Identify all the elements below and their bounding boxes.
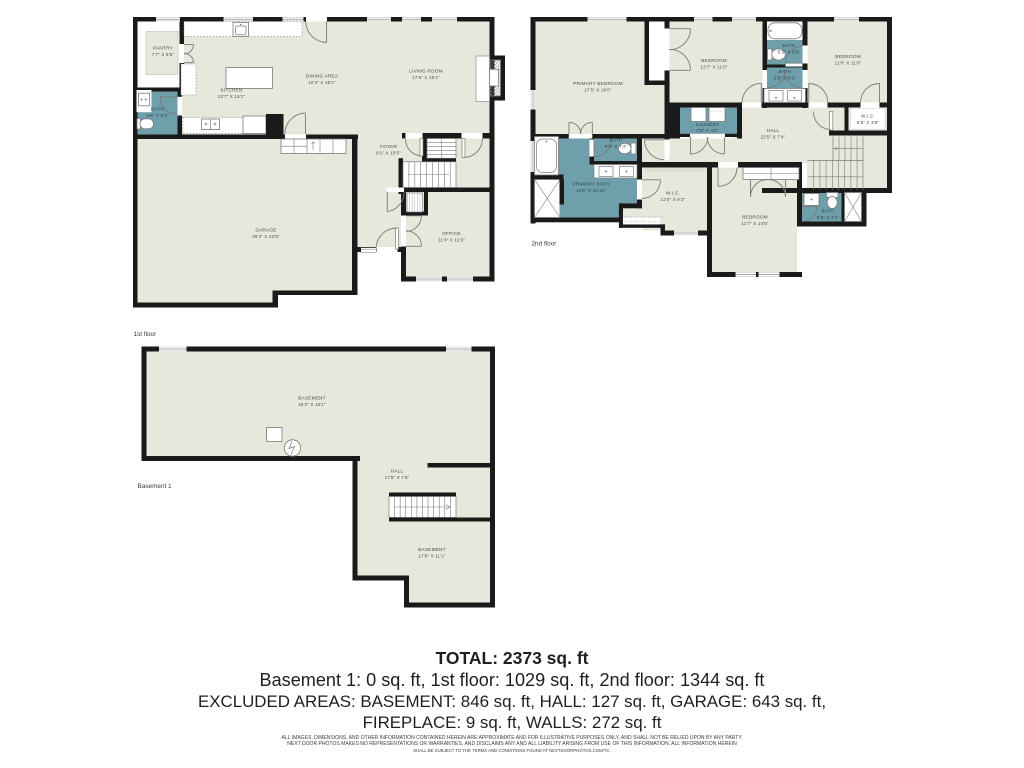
- svg-text:DINING AREA: DINING AREA: [306, 74, 339, 79]
- svg-text:PRIMARY BEDROOM: PRIMARY BEDROOM: [573, 81, 623, 86]
- svg-text:22'5" X 7'4": 22'5" X 7'4": [761, 134, 786, 139]
- svg-text:LAUNDRY: LAUNDRY: [696, 122, 720, 127]
- svg-text:12'7" X 11'0": 12'7" X 11'0": [700, 64, 727, 69]
- svg-text:5'5" X 4'4": 5'5" X 4'4": [817, 215, 839, 220]
- svg-text:46'2" X 15'1": 46'2" X 15'1": [298, 402, 326, 407]
- svg-text:OFFICE: OFFICE: [442, 231, 460, 236]
- svg-text:LIVING ROOM: LIVING ROOM: [409, 69, 442, 74]
- svg-text:BEDROOM: BEDROOM: [835, 54, 861, 59]
- svg-text:GARAGE: GARAGE: [255, 228, 276, 233]
- svg-text:5'3" X 6'6": 5'3" X 6'6": [778, 49, 800, 54]
- svg-text:BATH: BATH: [151, 107, 164, 112]
- svg-text:11'7" X 14'5": 11'7" X 14'5": [741, 221, 768, 226]
- svg-text:10'4" X 15'1": 10'4" X 15'1": [308, 80, 336, 85]
- svg-text:5'8" X 3'8": 5'8" X 3'8": [857, 120, 879, 125]
- svg-text:HALL: HALL: [767, 128, 780, 133]
- svg-text:BATH: BATH: [822, 209, 835, 214]
- svg-text:BASEMENT: BASEMENT: [298, 396, 325, 401]
- svg-text:17'8" X 11'1": 17'8" X 11'1": [418, 553, 445, 558]
- svg-text:BATH: BATH: [779, 69, 792, 74]
- svg-text:11'4" X 11'6": 11'4" X 11'6": [438, 237, 465, 242]
- svg-text:11'0" X 11'0": 11'0" X 11'0": [835, 60, 862, 65]
- svg-text:5'6" X 5'2": 5'6" X 5'2": [774, 75, 796, 80]
- svg-text:BASEMENT: BASEMENT: [418, 547, 445, 552]
- svg-text:PANTRY: PANTRY: [153, 46, 173, 51]
- svg-text:13'6" X 10'10": 13'6" X 10'10": [576, 188, 606, 193]
- svg-text:BATH: BATH: [610, 138, 623, 143]
- svg-text:9'0" X 7'4": 9'0" X 7'4": [605, 144, 627, 149]
- svg-text:13'7" X 15'1": 13'7" X 15'1": [218, 94, 246, 99]
- svg-text:5'8" X 9'1": 5'8" X 9'1": [146, 113, 168, 118]
- svg-text:9'1" X 15'5": 9'1" X 15'5": [376, 150, 401, 155]
- svg-text:17'5" X 7'8": 17'5" X 7'8": [385, 475, 410, 480]
- svg-text:BEDROOM: BEDROOM: [742, 215, 768, 220]
- svg-text:29'4" X 22'8": 29'4" X 22'8": [252, 234, 280, 239]
- svg-text:2nd floor: 2nd floor: [532, 241, 558, 248]
- svg-text:BATH: BATH: [783, 43, 796, 48]
- svg-text:7'8" X 4'5": 7'8" X 4'5": [696, 128, 718, 133]
- svg-text:KITCHEN: KITCHEN: [221, 88, 243, 93]
- svg-text:17'5" X 16'0": 17'5" X 16'0": [584, 87, 612, 92]
- svg-text:W.I.C.: W.I.C.: [666, 191, 680, 196]
- svg-text:1st floor: 1st floor: [134, 331, 158, 338]
- svg-text:PRIMARY BATH: PRIMARY BATH: [572, 182, 609, 187]
- svg-text:Basement 1: Basement 1: [138, 483, 173, 490]
- svg-text:HALL: HALL: [391, 469, 404, 474]
- svg-text:12'0" X 9'3": 12'0" X 9'3": [661, 197, 686, 202]
- svg-text:BEDROOM: BEDROOM: [701, 58, 727, 63]
- svg-text:W.I.C.: W.I.C.: [861, 114, 875, 119]
- svg-text:17'6" X 15'1": 17'6" X 15'1": [412, 75, 440, 80]
- svg-text:7'7" X 8'5": 7'7" X 8'5": [152, 52, 174, 57]
- svg-text:FOYER: FOYER: [380, 144, 398, 149]
